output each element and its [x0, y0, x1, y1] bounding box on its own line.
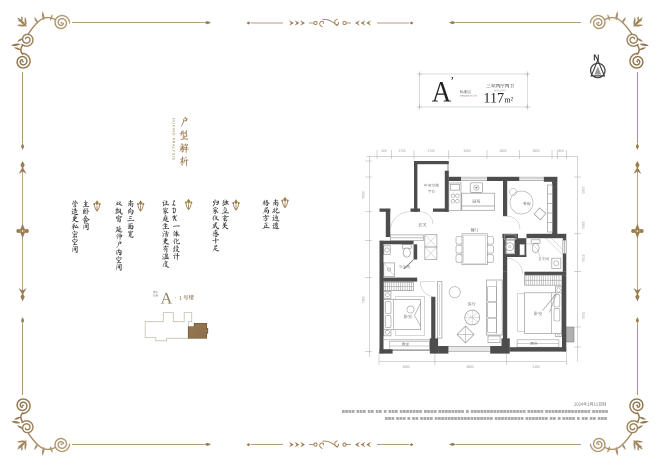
svg-text:1700: 1700 — [398, 149, 405, 153]
svg-text:2800: 2800 — [499, 149, 506, 153]
svg-text:1700: 1700 — [427, 149, 434, 153]
svg-text:A: A — [161, 291, 173, 308]
svg-text:3700: 3700 — [581, 254, 585, 261]
svg-text:HUXING ANALYSIS: HUXING ANALYSIS — [172, 118, 176, 161]
svg-text:’: ’ — [450, 74, 454, 88]
svg-text:117: 117 — [483, 90, 504, 106]
svg-text:5000: 5000 — [362, 191, 366, 198]
svg-text:7100: 7100 — [362, 296, 366, 303]
svg-text:m²: m² — [504, 95, 513, 104]
svg-text:3050: 3050 — [402, 365, 409, 369]
svg-text:2100: 2100 — [581, 186, 585, 193]
svg-text:500: 500 — [558, 149, 564, 153]
svg-text:3850: 3850 — [466, 365, 473, 369]
svg-text:3150: 3150 — [532, 365, 539, 369]
svg-text:·: · — [175, 295, 177, 301]
svg-text:3300: 3300 — [463, 149, 470, 153]
svg-text:400: 400 — [381, 149, 387, 153]
svg-text:3300: 3300 — [581, 221, 585, 228]
svg-text:2800: 2800 — [532, 149, 539, 153]
svg-text:A: A — [432, 76, 452, 109]
svg-text:7500: 7500 — [581, 311, 585, 318]
svg-text:STANDARD FLOOR: STANDARD FLOOR — [460, 94, 478, 97]
svg-text:1: 1 — [179, 295, 182, 302]
